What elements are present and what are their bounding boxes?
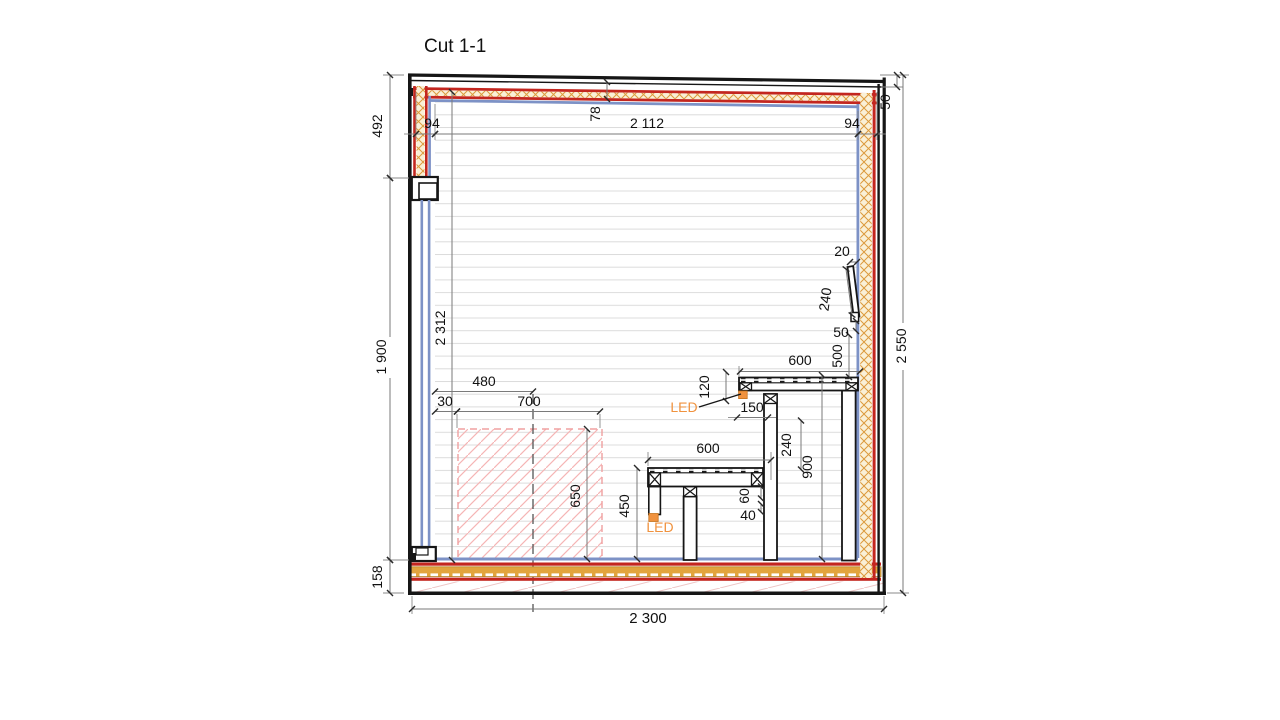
dim-left-1900: 1 900 <box>373 339 389 374</box>
dim-bench-step-240: 240 <box>778 433 794 457</box>
lower-bench-apron <box>649 487 661 515</box>
dim-bottom-2300: 2 300 <box>629 610 667 627</box>
dim-top-left-94: 94 <box>424 115 440 131</box>
cad-viewport: 94 2 112 94 78 50 492 1 900 158 2 550 2 … <box>0 0 1280 720</box>
dim-left-158: 158 <box>369 565 385 589</box>
dim-right-2550: 2 550 <box>893 328 909 363</box>
dim-left-492: 492 <box>369 114 385 138</box>
dim-ceiling-slope: 78 <box>587 106 603 122</box>
upper-bench-rear-support <box>842 391 856 561</box>
dim-bench-edge-60: 60 <box>736 488 752 504</box>
dim-backrest-to-bench: 500 <box>829 344 845 368</box>
led-upper-label: LED <box>670 399 697 415</box>
dim-bench-up-height: 900 <box>799 455 815 479</box>
dim-bench-low-height: 450 <box>616 494 632 518</box>
dim-top-right-94: 94 <box>844 115 860 131</box>
dim-roof-edge: 50 <box>877 94 893 110</box>
floor-assembly <box>408 558 886 596</box>
dim-backrest-bottom-gap: 50 <box>833 324 849 340</box>
dim-gap-30: 30 <box>437 393 453 409</box>
dim-heater-height: 650 <box>567 484 583 508</box>
dim-bench-up-drop: 120 <box>696 375 712 399</box>
dim-bench-low-width: 600 <box>696 440 720 456</box>
dim-heater-center: 480 <box>472 373 496 389</box>
led-lower-label: LED <box>646 519 673 535</box>
dim-backrest-top-gap: 20 <box>834 243 850 259</box>
upper-bench-front-support <box>764 394 777 560</box>
lower-bench-leg <box>684 497 697 561</box>
dim-ceiling-span: 2 112 <box>630 115 664 131</box>
dim-bench-up-width: 600 <box>788 352 812 368</box>
dim-heater-width: 700 <box>517 393 541 409</box>
dim-bench-lath-40: 40 <box>740 507 756 523</box>
door-glass-pane <box>421 200 424 547</box>
cut-1-1-drawing: 94 2 112 94 78 50 492 1 900 158 2 550 2 … <box>0 0 1280 720</box>
dim-interior-2312: 2 312 <box>432 310 448 345</box>
dim-support-offset: 150 <box>740 399 764 415</box>
dim-backrest-length: 240 <box>816 286 835 312</box>
drawing-title: Cut 1-1 <box>424 36 486 57</box>
